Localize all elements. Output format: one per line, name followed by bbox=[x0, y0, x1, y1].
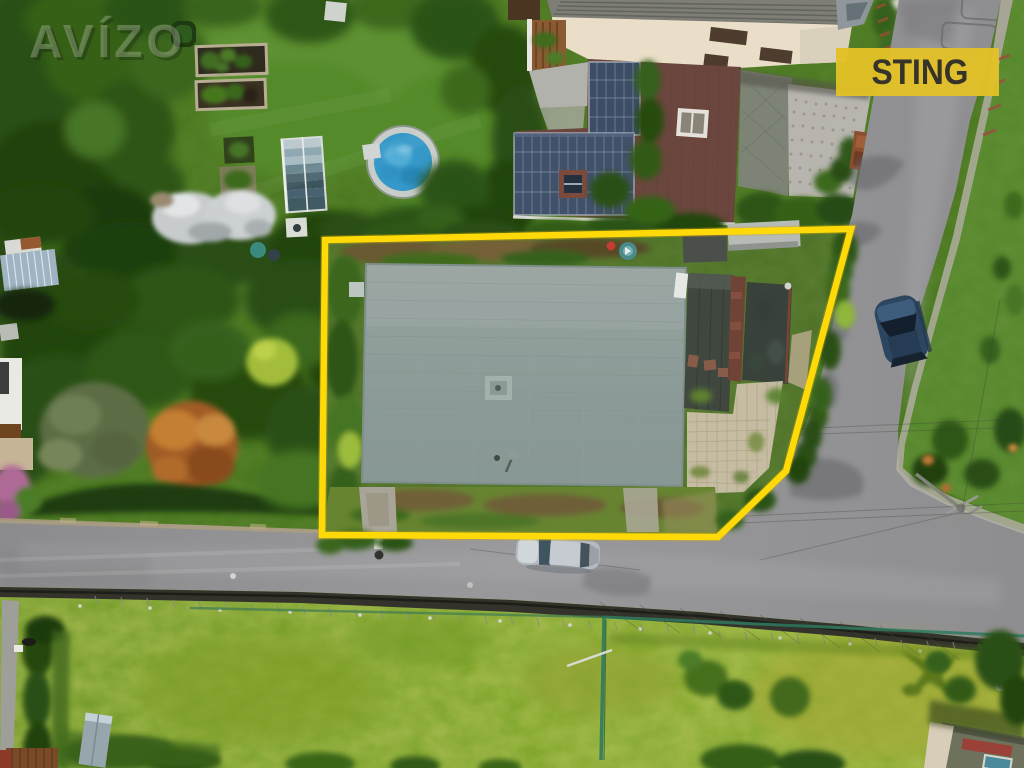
svg-text:AVÍZO: AVÍZO bbox=[29, 15, 186, 67]
svg-text:STING: STING bbox=[872, 53, 969, 92]
